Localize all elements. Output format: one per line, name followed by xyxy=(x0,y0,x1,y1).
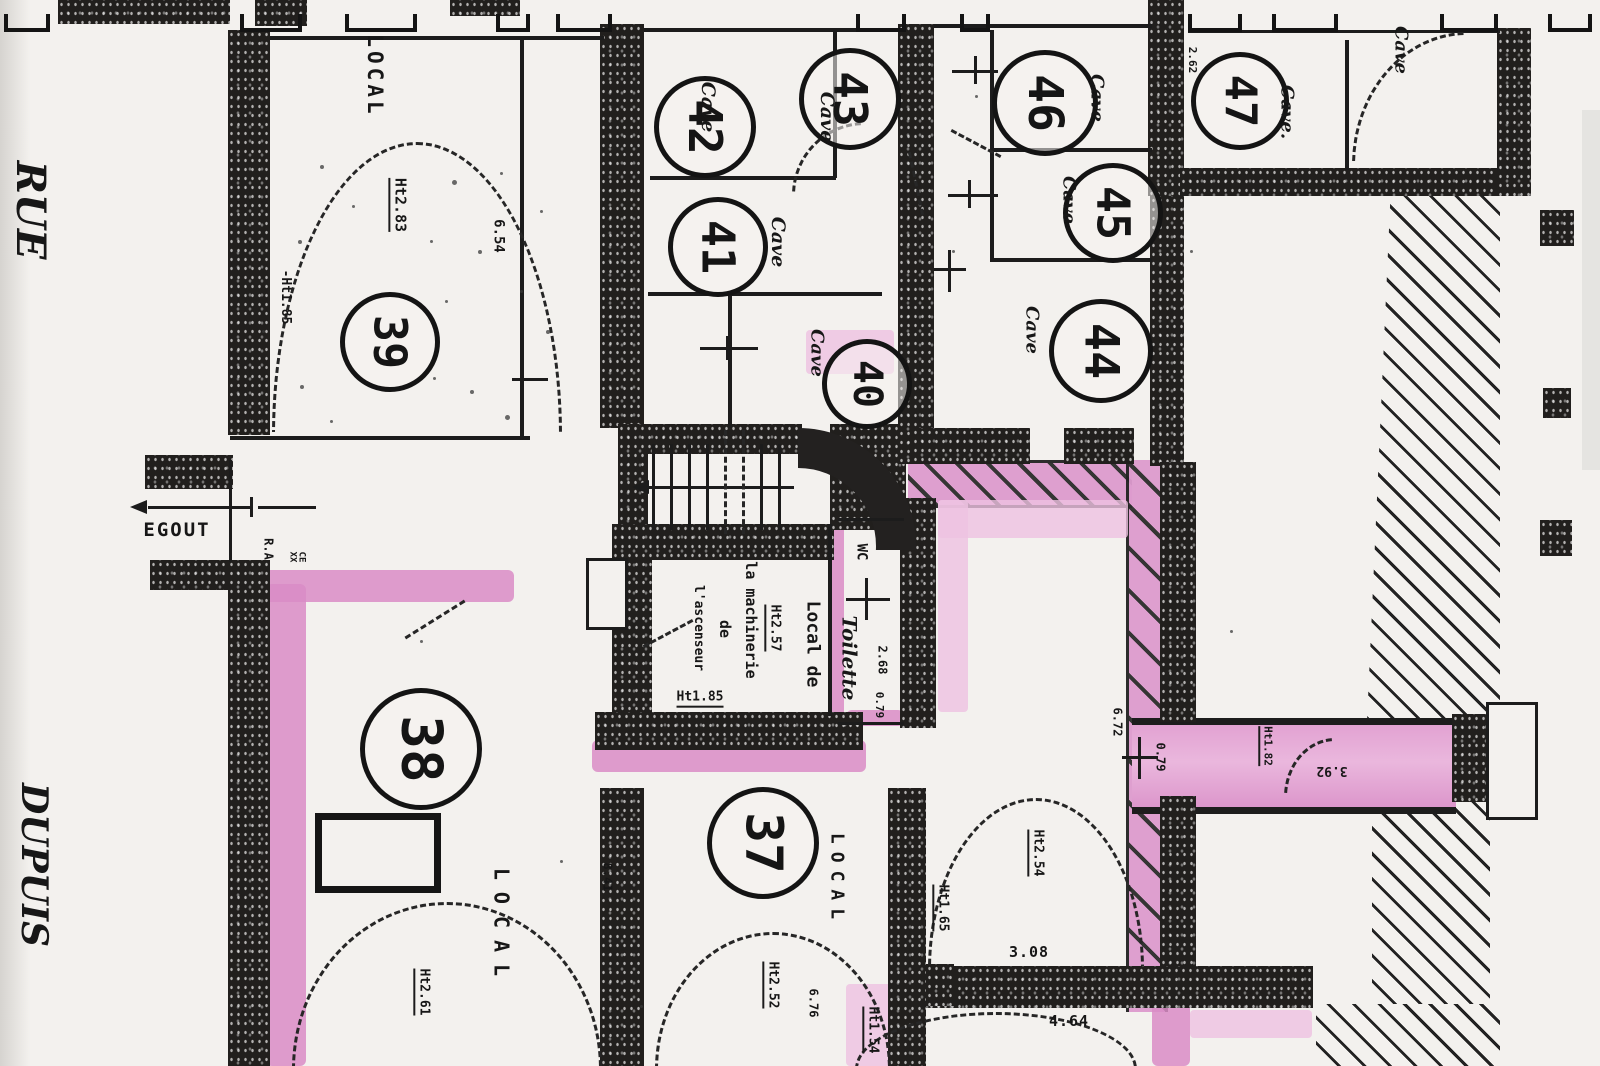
room-circle-10: 47 xyxy=(1191,52,1289,150)
thin-line xyxy=(230,436,530,440)
room-circle-6: 43 xyxy=(799,48,901,150)
label-ht257: Ht2.57 xyxy=(765,605,782,652)
thin-line xyxy=(726,336,729,360)
door-swing-arc xyxy=(292,902,602,1066)
door-swing-arc xyxy=(928,798,1144,966)
label-cave-41: Cave xyxy=(767,217,787,268)
label-ht185b: Ht1.85 xyxy=(677,691,724,708)
scan-bracket-tick xyxy=(986,14,990,32)
room-number: 39 xyxy=(364,315,417,369)
thin-line xyxy=(990,30,994,262)
label-d676: 6.76 xyxy=(807,989,820,1018)
label-cave-45: Cave xyxy=(1059,176,1078,224)
room-circle-3: 40 xyxy=(822,339,912,429)
wall-segment xyxy=(1543,388,1571,418)
wall-segment xyxy=(595,712,863,750)
door-swing-arc-edge xyxy=(292,902,602,1066)
label-mach-line3: de xyxy=(716,620,732,638)
label-ht165: Ht1.65 xyxy=(933,885,950,932)
label-local-38: LOCAL xyxy=(491,868,512,988)
label-cave-44: Cave xyxy=(1022,306,1041,354)
label-d079b: 0.79 xyxy=(1154,743,1167,772)
label-d079a: 0.79 xyxy=(873,692,885,719)
scan-dot xyxy=(1230,630,1233,633)
scan-bracket-tick xyxy=(1548,14,1552,32)
scan-dot xyxy=(352,205,355,208)
sketch-dash xyxy=(405,600,466,640)
scan-bracket-tick xyxy=(526,14,530,32)
stair-riser xyxy=(760,444,763,530)
scan-dot xyxy=(546,330,550,334)
thin-line xyxy=(846,598,890,601)
door-swing-arc xyxy=(272,142,562,432)
wall-segment xyxy=(1452,714,1488,802)
scan-bracket-tick xyxy=(960,14,964,32)
scan-dot xyxy=(433,377,436,380)
room-number: 41 xyxy=(692,220,745,274)
wall-segment xyxy=(600,788,644,1066)
label-d672: 6.72 xyxy=(1111,708,1124,737)
wall-segment xyxy=(228,560,270,1066)
label-d841: 8.41 xyxy=(601,863,614,892)
hatch-area xyxy=(1316,1004,1500,1066)
label-cave-40: Cave xyxy=(807,329,826,377)
label-street-rue: RUE xyxy=(9,161,51,260)
scan-dot xyxy=(445,300,448,303)
label-egout: EGOUT xyxy=(143,521,210,541)
scan-dot xyxy=(505,415,510,420)
stair-riser xyxy=(670,444,673,530)
label-ht185a: -Ht1.85 xyxy=(278,270,292,325)
room-number: 45 xyxy=(1087,186,1140,240)
label-d308: 3.08 xyxy=(1009,945,1049,961)
door-swing-arc-edge xyxy=(272,142,562,432)
label-ce-xx: CE XX xyxy=(287,552,306,563)
thin-line xyxy=(948,250,951,292)
thin-line xyxy=(974,56,977,84)
wall-segment xyxy=(228,30,270,435)
scan-bracket-tick xyxy=(413,14,417,32)
scan-bracket-tick xyxy=(298,14,302,32)
curved-stair-wall-ring xyxy=(798,428,916,550)
scan-dot xyxy=(470,390,474,394)
thin-line xyxy=(838,722,904,725)
label-d392: 3.92 xyxy=(1316,763,1347,777)
scan-dot xyxy=(420,640,423,643)
room-number: 38 xyxy=(389,715,454,782)
hatch-area xyxy=(1372,794,1490,1004)
scan-bracket-tick xyxy=(1334,14,1338,32)
scan-bracket-tick xyxy=(902,14,906,32)
door-swing-arc-edge xyxy=(928,798,1144,966)
highlighter-mark xyxy=(1190,1010,1312,1038)
label-d268: 2.68 xyxy=(876,646,889,675)
label-local-37: LOCAL xyxy=(827,833,846,927)
label-cave-43: Cave xyxy=(816,92,836,143)
curved-stair-wall xyxy=(798,428,916,550)
scan-dot xyxy=(300,385,304,389)
scan-dot xyxy=(330,420,333,423)
room-circle-4: 41 xyxy=(668,197,768,297)
room-circle-1: 38 xyxy=(360,688,482,810)
stair-riser xyxy=(688,444,691,530)
room-number: 37 xyxy=(734,812,793,873)
scan-dot xyxy=(262,330,265,333)
scan-bracket xyxy=(4,28,50,32)
label-cave-47: Cave. xyxy=(1277,85,1296,139)
wall-segment xyxy=(1064,428,1134,464)
scan-bracket-tick xyxy=(46,14,50,32)
scan-bracket-tick xyxy=(556,14,560,32)
label-cave-46: Cave xyxy=(1087,74,1106,122)
wall-segment xyxy=(1540,210,1574,246)
wall-segment xyxy=(58,0,230,24)
scan-bracket xyxy=(556,28,612,32)
scan-dot xyxy=(478,250,482,254)
label-d262: 2.62 xyxy=(1186,47,1198,74)
label-mach-line1: Local de xyxy=(803,601,822,688)
thin-line xyxy=(644,486,794,489)
thin-line xyxy=(270,36,604,40)
scan-dot xyxy=(560,860,563,863)
door-notch xyxy=(1486,702,1538,820)
thin-line xyxy=(229,460,232,562)
scan-dot xyxy=(952,250,955,253)
room-circle-0: 37 xyxy=(707,787,819,899)
scan-dot xyxy=(430,240,433,243)
scan-dot xyxy=(1190,250,1193,253)
scan-bracket-tick xyxy=(856,14,860,32)
label-ht254: Ht2.54 xyxy=(1028,830,1045,877)
stair-riser xyxy=(706,444,709,530)
stair-riser-dashed xyxy=(724,430,730,534)
scan-bracket xyxy=(1548,28,1592,32)
scan-dot xyxy=(640,1005,643,1008)
label-ht154: Ht1.54 xyxy=(863,1007,880,1054)
wall-segment xyxy=(450,0,520,16)
label-local-39: LOCAL xyxy=(364,34,386,117)
room-number: 47 xyxy=(1215,75,1266,128)
scan-bracket xyxy=(1440,28,1498,32)
scan-bracket-tick xyxy=(1188,14,1192,32)
thin-line xyxy=(934,268,966,271)
label-mach-line2: la machinerie xyxy=(742,561,758,678)
shaft-rectangle xyxy=(315,813,441,893)
wall-segment xyxy=(1148,0,1184,196)
thin-line xyxy=(148,506,250,509)
wall-segment xyxy=(912,428,1030,464)
scan-bracket xyxy=(856,28,906,32)
scan-dot xyxy=(298,240,302,244)
paper-vignette-right xyxy=(1582,110,1600,470)
scan-bracket-tick xyxy=(4,14,8,32)
label-d654: 6.54 xyxy=(491,219,506,253)
room-number: 46 xyxy=(1017,74,1073,132)
room-circle-7: 44 xyxy=(1049,299,1153,403)
scan-bracket-tick xyxy=(1272,14,1276,32)
wall-segment xyxy=(145,455,233,489)
scan-bracket-tick xyxy=(1440,14,1444,32)
thin-line xyxy=(968,180,971,208)
label-ht261: Ht2.61 xyxy=(414,969,431,1016)
wall-segment xyxy=(600,24,644,428)
label-cave-42: Cave xyxy=(697,82,717,133)
thin-line xyxy=(948,194,998,197)
scan-bracket xyxy=(496,28,530,32)
door-swing-arc xyxy=(855,1012,1137,1066)
label-ra: R.A xyxy=(262,538,275,560)
scan-bracket-tick xyxy=(1494,14,1498,32)
scan-bracket-tick xyxy=(240,14,244,32)
thin-line xyxy=(1138,737,1141,779)
scan-dot xyxy=(452,180,457,185)
scan-dot xyxy=(500,172,503,175)
thin-line xyxy=(700,347,758,350)
scan-bracket-tick xyxy=(345,14,349,32)
scan-bracket xyxy=(345,28,417,32)
label-wc: WC xyxy=(854,544,869,561)
thin-line xyxy=(258,506,316,509)
scan-bracket xyxy=(240,28,302,32)
label-ht252: Ht2.52 xyxy=(763,962,780,1009)
wall-segment xyxy=(926,964,954,1006)
thin-line xyxy=(828,524,832,716)
wall-segment xyxy=(1497,28,1531,196)
room-number: 44 xyxy=(1074,323,1129,380)
scan-dot xyxy=(520,290,523,293)
scan-bracket-tick xyxy=(608,14,612,32)
scan-bracket-tick xyxy=(496,14,500,32)
label-mach-line4: l'ascenseur xyxy=(691,585,705,671)
label-ht283: Ht2.83 xyxy=(389,178,408,232)
door-notch xyxy=(586,558,628,630)
floor-plan: 3938374041424344454647RUEDUPUISLOCALHt2.… xyxy=(0,0,1600,1066)
thin-line xyxy=(1345,40,1349,170)
label-ht182: Ht1.82 xyxy=(1259,726,1274,766)
wall-segment xyxy=(618,424,648,532)
thin-line xyxy=(250,497,253,517)
label-d464: 4.64 xyxy=(1049,1014,1089,1030)
room-circle-2: 39 xyxy=(340,292,440,392)
hatch-area xyxy=(1352,196,1500,726)
egout-arrowhead xyxy=(130,500,147,514)
stair-riser xyxy=(652,444,655,530)
label-street-dupuis: DUPUIS xyxy=(14,783,52,947)
room-circle-9: 46 xyxy=(992,50,1098,156)
label-cave-top-right: Cave xyxy=(1391,26,1410,74)
thin-line xyxy=(648,292,882,296)
scan-dot xyxy=(975,95,978,98)
scan-bracket xyxy=(1272,28,1338,32)
wall-segment xyxy=(1180,168,1520,196)
scan-dot xyxy=(320,165,324,169)
scan-bracket xyxy=(1188,28,1242,32)
thin-line xyxy=(728,292,732,428)
thin-line xyxy=(865,578,868,620)
stair-riser xyxy=(778,444,781,530)
door-swing-arc-edge xyxy=(855,1012,1137,1066)
highlighter-mark xyxy=(938,500,968,712)
wall-segment xyxy=(1160,462,1196,722)
scan-bracket-tick xyxy=(1588,14,1592,32)
room-number: 40 xyxy=(844,360,890,408)
thin-line xyxy=(838,518,904,521)
scan-bracket-tick xyxy=(1238,14,1242,32)
highlighter-mark xyxy=(1152,1002,1190,1066)
stair-arrowhead xyxy=(632,480,649,494)
wall-segment xyxy=(1540,520,1572,556)
wall-segment xyxy=(1187,966,1313,1008)
scan-dot xyxy=(540,210,543,213)
label-toilette: Toilette xyxy=(839,615,860,700)
stair-riser-dashed xyxy=(742,430,748,534)
